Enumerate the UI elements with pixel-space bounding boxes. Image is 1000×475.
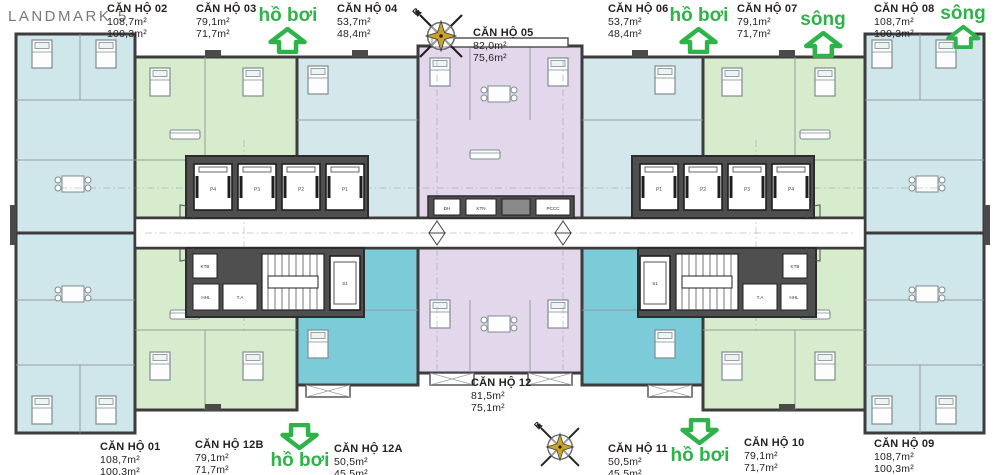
pool-label: hồ bơi xyxy=(259,6,318,26)
pool-marker-top-left: hồ bơi xyxy=(259,6,318,54)
unit-name: CĂN HỘ 11 xyxy=(608,443,668,456)
core-room-label: T.A xyxy=(757,295,765,300)
lobby-room-label: ĐH xyxy=(444,206,451,211)
unit-name: CĂN HỘ 02 xyxy=(107,3,167,16)
arrow-down-icon xyxy=(280,423,320,450)
unit-area-net: 100,3m² xyxy=(874,463,934,475)
unit-area-gross: 108,7m² xyxy=(100,454,160,467)
unit-area-gross: 50,5m² xyxy=(334,456,403,469)
service-elevator-label: S1 xyxy=(342,281,348,286)
elevator-label: P2 xyxy=(298,187,304,193)
elevator-label: P3 xyxy=(254,187,260,193)
unit-label-12: CĂN HỘ 12 81,5m² 75,1m² xyxy=(471,377,531,415)
unit-label-05: CĂN HỘ 05 82,0m² 75,6m² xyxy=(473,27,533,65)
river-marker-mid: sông xyxy=(800,10,845,58)
unit-area-gross: 79,1m² xyxy=(196,16,256,29)
pool-label: hồ bơi xyxy=(670,6,729,26)
lobby-room-label: PCCC xyxy=(546,206,560,211)
core-room-label: HHL xyxy=(789,295,799,300)
unit-name: CĂN HỘ 12B xyxy=(195,439,264,452)
pool-marker-bottom-left: hồ bơi xyxy=(271,423,330,471)
unit-area-net: 48,4m² xyxy=(337,28,397,41)
core-room-label: KTB xyxy=(791,264,800,269)
unit-name: CĂN HỘ 03 xyxy=(196,3,256,16)
pool-marker-top-right: hồ bơi xyxy=(670,6,729,54)
unit-label-01: CĂN HỘ 01 108,7m² 100,3m² xyxy=(100,441,160,475)
core-room-label: HHL xyxy=(201,295,211,300)
unit-label-10: CĂN HỘ 10 79,1m² 71,7m² xyxy=(744,437,804,475)
unit-name: CĂN HỘ 09 xyxy=(874,438,934,451)
unit-area-gross: 108,7m² xyxy=(874,16,934,29)
unit-label-08: CĂN HỘ 08 108,7m² 100,3m² xyxy=(874,3,934,41)
unit-area-gross: 50,5m² xyxy=(608,456,668,469)
unit-area-net: 100,3m² xyxy=(100,466,160,475)
unit-name: CĂN HỘ 12A xyxy=(334,443,403,456)
unit-label-12B: CĂN HỘ 12B 79,1m² 71,7m² xyxy=(195,439,264,475)
unit-name: CĂN HỘ 12 xyxy=(471,377,531,390)
pool-marker-bottom-right: hồ bơi xyxy=(671,418,730,466)
river-label: sông xyxy=(800,10,845,30)
core-room-label: T.A xyxy=(237,295,245,300)
elevator-label: P4 xyxy=(788,187,794,193)
unit-label-02: CĂN HỘ 02 108,7m² 100,3m² xyxy=(107,3,167,41)
unit-label-11: CĂN HỘ 11 50,5m² 45,5m² xyxy=(608,443,668,475)
unit-label-12A: CĂN HỘ 12A 50,5m² 45,5m² xyxy=(334,443,403,475)
unit-area-gross: 79,1m² xyxy=(737,16,797,29)
stairs-icon xyxy=(262,254,324,310)
unit-area-gross: 108,7m² xyxy=(874,451,934,464)
stair-core-left: KTB HHL T.A S1 xyxy=(186,248,364,317)
arrow-up-icon xyxy=(945,25,981,49)
unit-area-net: 71,7m² xyxy=(195,464,264,475)
arrow-up-icon xyxy=(679,27,719,54)
unit-name: CĂN HỘ 10 xyxy=(744,437,804,450)
unit-name: CĂN HỘ 04 xyxy=(337,3,397,16)
unit-name: CĂN HỘ 06 xyxy=(608,3,668,16)
unit-area-net: 100,3m² xyxy=(874,28,934,41)
unit-area-net: 45,5m² xyxy=(334,468,403,475)
river-label: sông xyxy=(940,4,985,24)
unit-area-gross: 79,1m² xyxy=(195,452,264,465)
unit-area-net: 100,3m² xyxy=(107,28,167,41)
unit-area-net: 48,4m² xyxy=(608,28,668,41)
unit-area-net: 45,5m² xyxy=(608,468,668,475)
pool-label: hồ bơi xyxy=(271,451,330,471)
elevator-label: P1 xyxy=(342,187,348,193)
unit-area-net: 75,6m² xyxy=(473,52,533,65)
unit-area-gross: 79,1m² xyxy=(744,450,804,463)
unit-name: CĂN HỘ 07 xyxy=(737,3,797,16)
unit-name: CĂN HỘ 01 xyxy=(100,441,160,454)
unit-label-04: CĂN HỘ 04 53,7m² 48,4m² xyxy=(337,3,397,41)
elevator-label: P3 xyxy=(744,187,750,193)
pool-label: hồ bơi xyxy=(671,446,730,466)
unit-area-net: 71,7m² xyxy=(737,28,797,41)
unit-area-net: 71,7m² xyxy=(744,462,804,475)
arrow-down-icon xyxy=(680,418,720,445)
elevator-label: P1 xyxy=(656,187,662,193)
river-marker-far-right: sông xyxy=(940,4,985,49)
elevator-label: P4 xyxy=(210,187,216,193)
elevator-label: P2 xyxy=(700,187,706,193)
unit-name: CĂN HỘ 08 xyxy=(874,3,934,16)
unit-label-06: CĂN HỘ 06 53,7m² 48,4m² xyxy=(608,3,668,41)
unit-area-gross: 108,7m² xyxy=(107,16,167,29)
elevator-bank-right: P1 P2 P3 P4 xyxy=(632,156,814,218)
arrow-up-icon xyxy=(803,31,843,58)
unit-name: CĂN HỘ 05 xyxy=(473,27,533,40)
lobby-technical-strip: ĐH KTN PCCC xyxy=(428,196,574,218)
unit-area-net: 75,1m² xyxy=(471,402,531,415)
stairs-icon xyxy=(676,254,738,310)
arrow-up-icon xyxy=(268,27,308,54)
compass-rose-top: B xyxy=(410,5,472,67)
unit-area-net: 71,7m² xyxy=(196,28,256,41)
unit-label-09: CĂN HỘ 09 108,7m² 100,3m² xyxy=(874,438,934,475)
unit-area-gross: 53,7m² xyxy=(608,16,668,29)
unit-label-03: CĂN HỘ 03 79,1m² 71,7m² xyxy=(196,3,256,41)
lobby-room-label: KTN xyxy=(476,206,485,211)
compass-rose-bottom: B xyxy=(531,419,589,475)
unit-area-gross: 81,5m² xyxy=(471,390,531,403)
service-elevator-label: S1 xyxy=(652,281,658,286)
stair-core-right: S1 T.A HHL KTB xyxy=(638,248,816,317)
unit-area-gross: 53,7m² xyxy=(337,16,397,29)
core-room-label: KTB xyxy=(201,264,210,269)
unit-label-07: CĂN HỘ 07 79,1m² 71,7m² xyxy=(737,3,797,41)
elevator-bank-left: P4 P3 P2 P1 xyxy=(186,156,368,218)
unit-area-gross: 82,0m² xyxy=(473,40,533,53)
floorplan-canvas: P4 P3 P2 P1 P1 P2 P3 P4 ĐH KTN PCCC xyxy=(0,0,1000,475)
